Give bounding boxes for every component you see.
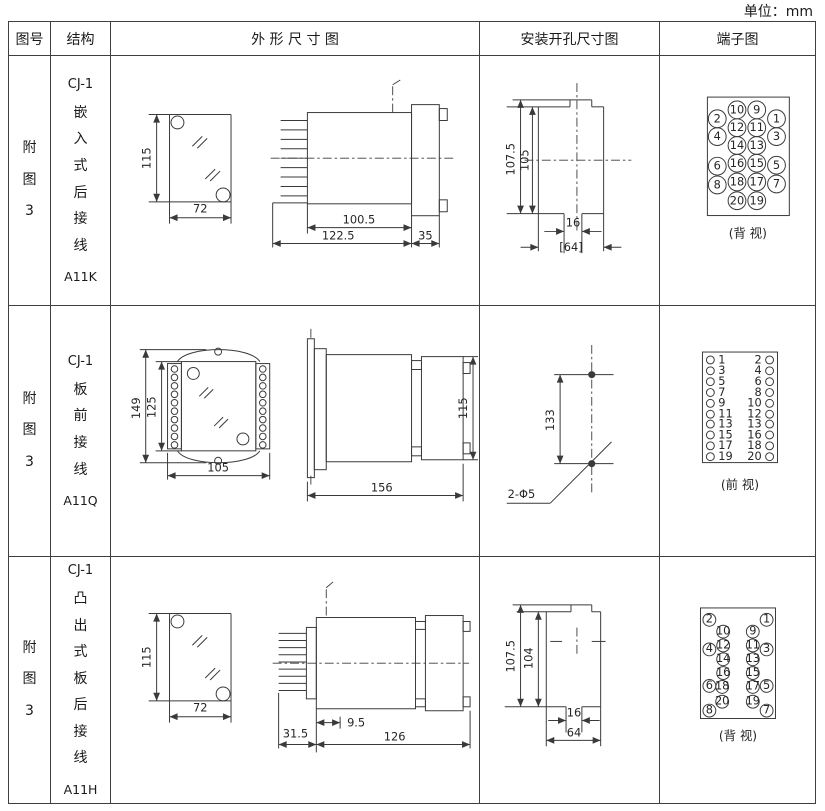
glass-hatch <box>192 635 207 647</box>
dimension-table: 图号 结构 外 形 尺 寸 图 安装开孔尺寸图 端子图 附图3 CJ-1 嵌入式… <box>8 21 816 804</box>
terminal-pin-number: 17 <box>746 679 760 693</box>
front-flange <box>314 348 326 469</box>
terminal-pin-number: 5 <box>773 157 780 171</box>
terminal-pins: 1092112114314131615651817872019 <box>708 101 785 210</box>
dim-front-height-inner: 125 <box>145 396 159 418</box>
mounting-screw-hole <box>216 687 230 701</box>
relay-body <box>181 361 255 450</box>
terminal-pin-number: 8 <box>706 702 713 716</box>
glass-hatch <box>199 387 213 398</box>
view-label: (背 视) <box>729 225 767 240</box>
dim-total-width: [64] <box>559 240 582 254</box>
terminal-pin-number: 7 <box>763 702 770 716</box>
terminal-pin-number: 11 <box>746 637 760 651</box>
terminal-pin-circle <box>766 410 774 418</box>
model-name: CJ-1 <box>68 563 93 578</box>
terminal-pin-number: 11 <box>750 120 764 134</box>
terminal-pin-number: 20 <box>715 694 729 708</box>
terminal-pin-circle <box>706 441 714 449</box>
terminal-pin-number: 2 <box>714 111 721 125</box>
terminal-pin-circle <box>766 377 774 385</box>
side-view: 9.5 31.5 126 <box>273 582 470 753</box>
terminal-pin-number: 13 <box>750 138 764 152</box>
dim-side-height: 115 <box>456 397 470 419</box>
mounting-screw-hole <box>237 432 249 444</box>
model-code: A11Q <box>63 493 97 508</box>
front-view: 149 125 105 <box>129 348 270 479</box>
dim-body-length: 126 <box>384 730 406 744</box>
cutout-outline <box>504 605 605 733</box>
cell-outline-row3: 115 72 <box>111 557 480 803</box>
dim-height-outer: 107.5 <box>503 640 517 673</box>
structure-desc: 嵌入式后接线 <box>72 100 88 260</box>
relay-body <box>326 354 411 461</box>
terminal-pin-number: 1 <box>773 111 780 125</box>
terminal-pin-number: 2 <box>706 612 713 626</box>
cell-terminal-row2: 135791113151719 2468101213161820 (前 视) <box>660 306 815 557</box>
cell-figure-no-row3: 附图3 <box>9 557 51 803</box>
dim-flange-depth: 35 <box>418 228 433 242</box>
terminal-pin-circle <box>706 388 714 396</box>
mounting-hole-drawing-a11q: 133 2-Φ5 <box>481 307 659 556</box>
model-name: CJ-1 <box>68 77 93 92</box>
header-terminal: 端子图 <box>660 22 815 56</box>
model-code: A11H <box>64 782 98 797</box>
cell-structure-row2: CJ-1 板前接线 A11Q <box>51 306 111 557</box>
front-view: 115 72 <box>140 114 231 223</box>
terminal-pin-number: 16 <box>716 665 730 679</box>
figure-no: 附图3 <box>21 384 37 479</box>
terminal-pin-number: 12 <box>730 120 744 134</box>
terminal-pin-number: 14 <box>730 138 744 152</box>
dim-total-length: 122.5 <box>322 228 355 242</box>
mounting-hole-drawing-a11k: 107.5 105 16 [64] <box>481 57 659 305</box>
dim-front-width: 72 <box>193 701 208 715</box>
terminal-pin-circle <box>766 431 774 439</box>
terminal-pin-circle <box>706 410 714 418</box>
terminal-pin-number: 19 <box>750 193 764 207</box>
terminal-pin-circle <box>766 452 774 460</box>
cell-mounting-row1: 107.5 105 16 [64] <box>480 56 660 306</box>
cell-terminal-row1: 1092112114314131615651817872019 (背 视) <box>660 56 815 306</box>
terminal-diagram-a11k: 1092112114314131615651817872019 (背 视) <box>661 57 814 305</box>
terminal-pin-circle <box>766 388 774 396</box>
terminal-pin-number: 5 <box>763 678 770 692</box>
terminal-pin-number: 20 <box>730 193 744 207</box>
structure-desc: 板前接线 <box>72 377 88 483</box>
terminal-pin-circle <box>706 355 714 363</box>
dim-front-width: 105 <box>207 460 229 474</box>
terminal-diagram-a11q: 135791113151719 2468101213161820 (前 视) <box>661 307 814 556</box>
hole-spec-label: 2-Φ5 <box>507 487 535 501</box>
terminal-pin-number: 19 <box>746 694 760 708</box>
terminal-pin-number: 8 <box>714 177 721 191</box>
header-structure: 结构 <box>51 22 111 56</box>
view-label: (背 视) <box>719 728 757 743</box>
mounting-screw-hole <box>171 116 184 129</box>
mounting-hole-drawing-a11h: 107.5 104 16 64 <box>481 558 659 802</box>
dim-total-width: 64 <box>566 725 580 739</box>
terminal-pins-right: 2468101213161820 <box>747 352 773 463</box>
dim-slot-width: 16 <box>565 215 579 229</box>
front-view: 115 72 <box>140 614 231 723</box>
terminal-pins: 2110941211314131615618175201987 <box>703 612 773 717</box>
mounting-screw-hole <box>216 187 230 201</box>
cell-outline-row1: 115 72 <box>111 56 480 306</box>
terminal-pin-circle <box>706 420 714 428</box>
dim-side-length: 156 <box>371 480 393 494</box>
terminal-pin-number: 13 <box>746 651 760 665</box>
terminal-pin-number: 1 <box>763 612 770 626</box>
terminal-pin-number: 18 <box>730 174 744 188</box>
terminal-pin-number: 4 <box>714 129 721 143</box>
terminal-pin-number: 10 <box>716 623 730 637</box>
terminal-pin-number: 17 <box>750 174 764 188</box>
header-outline: 外 形 尺 寸 图 <box>111 22 480 56</box>
dim-front-height-outer: 149 <box>129 397 143 419</box>
cell-structure-row3: CJ-1 凸出式板后接线 A11H <box>51 557 111 803</box>
cell-mounting-row3: 107.5 104 16 64 <box>480 557 660 803</box>
terminal-pin-circle <box>706 399 714 407</box>
model-code: A11K <box>64 269 97 284</box>
dim-offset: 9.5 <box>347 716 365 730</box>
dim-height-inner: 105 <box>517 149 531 171</box>
datasheet-page: 单位：mm 图号 结构 外 形 尺 寸 图 安装开孔尺寸图 端子图 附图3 CJ… <box>0 0 825 811</box>
glass-hatch <box>205 169 220 181</box>
dim-front-height: 115 <box>140 147 154 169</box>
outline-drawing-a11q: 149 125 105 <box>112 307 478 556</box>
front-flange <box>412 104 440 215</box>
model-name: CJ-1 <box>68 354 93 369</box>
dim-height-outer: 107.5 <box>503 142 517 175</box>
mounting-screw-hole <box>171 615 184 628</box>
terminal-pin-circle <box>766 399 774 407</box>
terminal-pin-circle <box>706 366 714 374</box>
terminal-pin-circle <box>706 452 714 460</box>
terminal-pin-number: 9 <box>753 102 760 116</box>
outline-drawing-a11k: 115 72 <box>112 57 478 305</box>
glass-hatch <box>205 668 220 680</box>
terminal-pin-number: 16 <box>730 155 744 169</box>
dim-front-width: 72 <box>193 201 208 215</box>
top-flange <box>177 349 259 361</box>
cell-figure-no-row2: 附图3 <box>9 306 51 557</box>
terminal-pin-circle <box>766 441 774 449</box>
mounting-screw-hole <box>187 367 199 379</box>
terminal-pin-circle <box>706 377 714 385</box>
terminal-pin-number: 20 <box>747 449 761 463</box>
terminal-pin-circle <box>706 431 714 439</box>
dim-slot-width: 16 <box>566 706 580 720</box>
side-view: 100.5 122.5 35 <box>271 79 454 247</box>
unit-label: 单位：mm <box>744 1 813 21</box>
outline-drawing-a11h: 115 72 <box>112 558 478 802</box>
terminal-pin-number: 15 <box>750 155 764 169</box>
terminal-pin-circle <box>766 420 774 428</box>
dim-pin-length: 31.5 <box>283 727 308 741</box>
cell-structure-row1: CJ-1 嵌入式后接线 A11K <box>51 56 111 306</box>
terminal-screws <box>171 365 178 447</box>
terminal-pin-number: 6 <box>706 678 713 692</box>
terminal-pin-number: 14 <box>716 651 730 665</box>
cell-figure-no-row1: 附图3 <box>9 56 51 306</box>
view-label: (前 视) <box>721 477 759 492</box>
figure-no: 附图3 <box>21 133 37 228</box>
terminal-fins <box>279 633 307 690</box>
dim-front-height: 115 <box>140 646 154 668</box>
dim-hole-distance: 133 <box>543 409 557 431</box>
terminal-pin-number: 15 <box>746 665 760 679</box>
terminal-diagram-a11h: 2110941211314131615618175201987 (背 视) <box>661 558 814 802</box>
terminal-pin-number: 18 <box>715 679 729 693</box>
leader-line <box>550 441 611 502</box>
terminal-pin-number: 7 <box>773 176 780 190</box>
dim-height-inner: 104 <box>521 647 535 669</box>
glass-hatch <box>192 136 207 148</box>
terminal-pin-number: 6 <box>714 158 721 172</box>
header-figure-no: 图号 <box>9 22 51 56</box>
cell-terminal-row3: 2110941211314131615618175201987 (背 视) <box>660 557 815 803</box>
terminal-pins-left: 135791113151719 <box>706 352 732 463</box>
terminal-pin-circle <box>766 366 774 374</box>
cell-outline-row2: 149 125 105 <box>111 306 480 557</box>
terminal-pin-number: 9 <box>749 623 756 637</box>
mounting-panel <box>307 338 314 477</box>
terminal-screws <box>259 365 266 447</box>
figure-no: 附图3 <box>21 633 37 728</box>
cell-mounting-row2: 133 2-Φ5 <box>480 306 660 557</box>
dim-body-length: 100.5 <box>343 212 376 226</box>
glass-hatch <box>214 417 228 428</box>
terminal-pin-number: 3 <box>763 641 770 655</box>
terminal-pin-number: 19 <box>718 449 732 463</box>
terminal-pin-number: 12 <box>716 637 730 651</box>
terminal-pin-number: 4 <box>706 641 713 655</box>
header-mounting: 安装开孔尺寸图 <box>480 22 660 56</box>
terminal-pin-number: 3 <box>773 129 780 143</box>
terminal-pin-number: 10 <box>730 102 744 116</box>
side-view: 115 156 <box>307 328 478 501</box>
structure-desc: 凸出式板后接线 <box>72 586 88 772</box>
terminal-pin-circle <box>766 355 774 363</box>
